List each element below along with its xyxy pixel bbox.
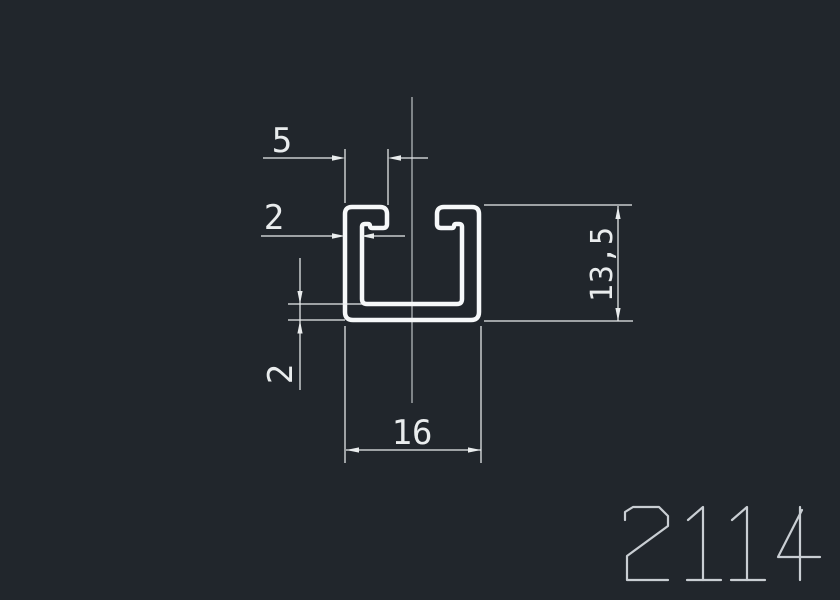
dim-label-wall-thickness: 2	[264, 198, 284, 238]
dim-label-overall-height: 13,5	[585, 226, 620, 302]
dim-label-overall-width: 16	[392, 413, 433, 453]
drawing-svg: 5 2 2 16	[0, 0, 840, 600]
canvas-background	[0, 0, 840, 600]
cad-drawing-canvas: 5 2 2 16	[0, 0, 840, 600]
dim-label-lip-width: 5	[272, 121, 292, 161]
dim-label-base-thickness: 2	[261, 364, 301, 384]
